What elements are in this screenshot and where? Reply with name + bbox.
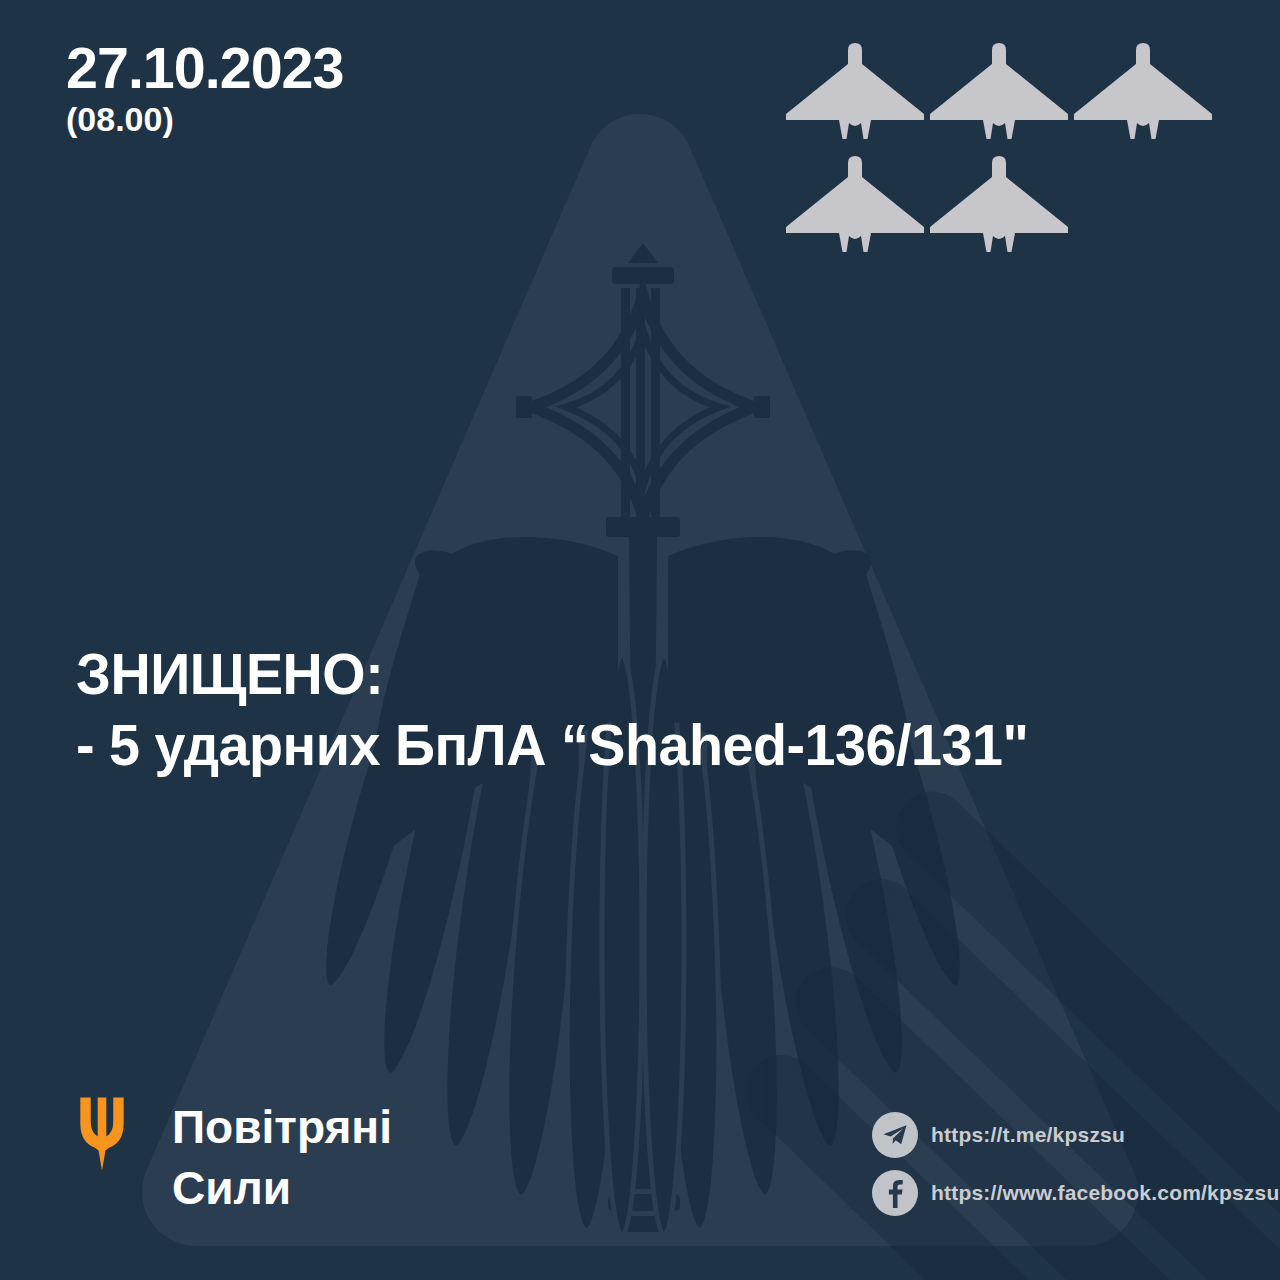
facebook-url: https://www.facebook.com/kpszsu [931,1181,1279,1205]
brand-line-2: Сили [172,1157,392,1218]
facebook-link-row: https://www.facebook.com/kpszsu [872,1170,1279,1216]
shahed-drone-icon [929,155,1069,259]
drone-row [785,155,1213,259]
telegram-link-row: https://t.me/kpszsu [872,1112,1125,1158]
shahed-drone-icon [929,42,1069,146]
report-date-block: 27.10.2023 (08.00) [66,38,346,138]
destroyed-line-shahed: - 5 ударних БпЛА “Shahed-136/131" [76,709,1028,780]
air-force-brand: Повітряні Сили [172,1096,392,1218]
facebook-icon [872,1170,918,1216]
report-date: 27.10.2023 [66,38,343,98]
destroyed-headline: ЗНИЩЕНО: - 5 ударних БпЛА “Shahed-136/13… [76,638,1028,780]
telegram-url: https://t.me/kpszsu [931,1123,1125,1147]
shahed-drone-icon [785,42,925,146]
shahed-drone-icon [785,155,925,259]
report-time: (08.00) [66,100,346,138]
telegram-icon [872,1112,918,1158]
ukraine-trident-icon [76,1092,128,1176]
destroyed-title: ЗНИЩЕНО: [76,638,1028,709]
drone-row [785,42,1213,146]
drone-tally-grid [785,42,1213,259]
brand-line-1: Повітряні [172,1096,392,1157]
shahed-drone-icon [1073,42,1213,146]
